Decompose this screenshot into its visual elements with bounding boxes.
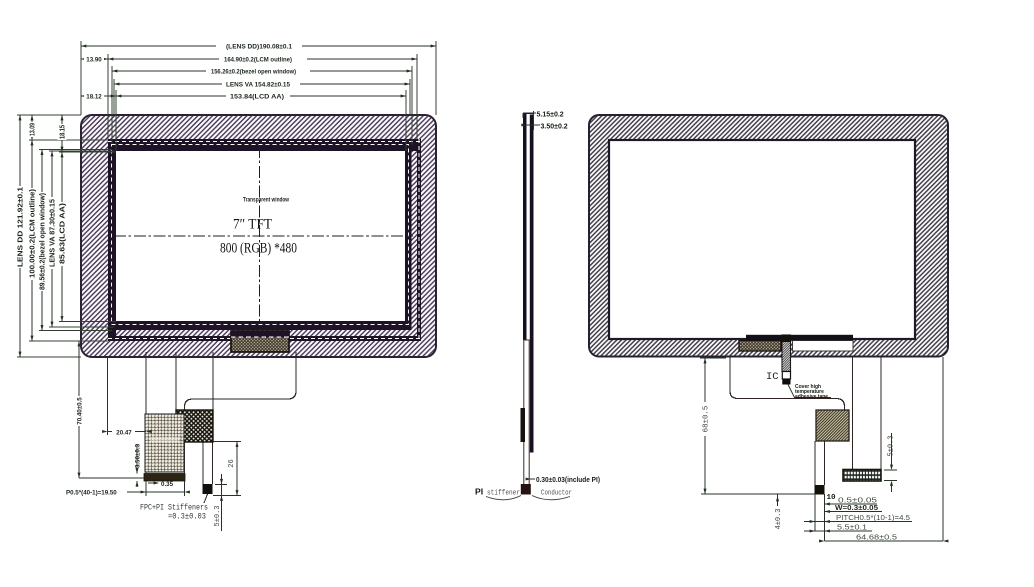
svg-text:13.90: 13.90 [86,57,102,64]
svg-text:(LENS DD)190.08±0.1: (LENS DD)190.08±0.1 [226,44,293,51]
svg-text:5±0.3: 5±0.3 [888,435,896,456]
svg-text:164.90±0.2(LCM outline): 164.90±0.2(LCM outline) [224,57,292,64]
svg-text:10: 10 [827,494,837,502]
svg-text:FPC+PI Stiffeners: FPC+PI Stiffeners [140,504,208,513]
svg-text:7″ TFT: 7″ TFT [233,217,272,233]
svg-text:W=0.3±0.05: W=0.3±0.05 [835,503,878,512]
svg-text:PITCH0.5*(10-1)=4.5: PITCH0.5*(10-1)=4.5 [836,513,910,522]
svg-text:153.84(LCD AA): 153.84(LCD AA) [230,94,284,101]
svg-text:P0.5*(40-1)=19.50: P0.5*(40-1)=19.50 [66,490,117,497]
svg-text:0.30±0.03(include PI): 0.30±0.03(include PI) [536,477,600,484]
svg-text:64.68±0.5: 64.68±0.5 [856,533,897,542]
svg-text:800 (RGB) *480: 800 (RGB) *480 [220,241,297,257]
svg-text:3.50±0.3: 3.50±0.3 [135,443,142,468]
svg-text:5±0.3: 5±0.3 [214,505,222,526]
svg-text:18.12: 18.12 [86,94,102,101]
svg-text:85.63(LCD AA): 85.63(LCD AA) [60,203,67,264]
svg-text:89.56±0.2(bezel open window): 89.56±0.2(bezel open window) [40,193,47,290]
svg-text:Transparent window: Transparent window [243,197,289,204]
svg-text:20.47: 20.47 [116,429,132,436]
svg-text:26: 26 [228,459,236,467]
svg-text:LENS VA 154.82±0.15: LENS VA 154.82±0.15 [226,82,291,89]
svg-text:LENS DD 121.92±0.1: LENS DD 121.92±0.1 [18,187,25,267]
svg-text:70.40±0.5: 70.40±0.5 [77,397,84,425]
svg-text:4±0.3: 4±0.3 [775,508,783,529]
svg-text:LENS VA 87.30±0.15: LENS VA 87.30±0.15 [50,199,57,267]
svg-text:13.09: 13.09 [30,123,37,136]
svg-text:=0.3±0.03: =0.3±0.03 [168,513,206,522]
svg-text:18.15: 18.15 [60,125,67,139]
svg-text:stiffener: stiffener [487,490,520,498]
svg-text:PI: PI [475,487,483,497]
svg-text:0.35: 0.35 [161,481,174,488]
svg-text:100.00±0.2(LCM outline): 100.00±0.2(LCM outline) [30,189,37,278]
svg-text:5.15±0.2: 5.15±0.2 [537,111,564,118]
svg-text:IC: IC [766,371,779,383]
svg-text:156.26±0.2(bezel open window): 156.26±0.2(bezel open window) [211,69,296,76]
svg-text:Conductor: Conductor [541,490,572,498]
svg-text:3.50±0.2: 3.50±0.2 [541,123,568,130]
svg-text:5.5±0.1: 5.5±0.1 [837,523,867,532]
svg-text:68±0.5: 68±0.5 [703,406,711,433]
